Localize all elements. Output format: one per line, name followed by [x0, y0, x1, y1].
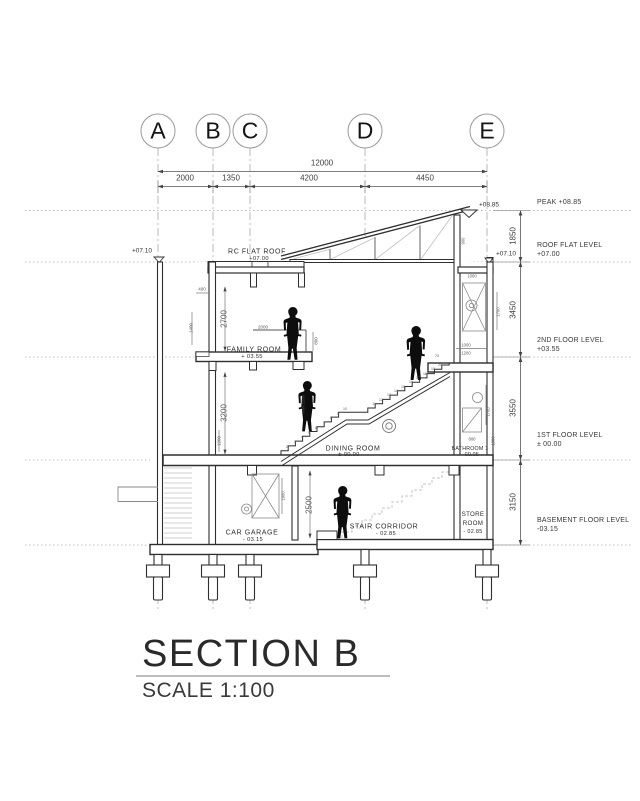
dim-1400: 1400	[189, 323, 194, 333]
stair-step-number: 18	[423, 372, 427, 376]
level-peak: PEAK +08.85	[537, 199, 581, 208]
stair-step-number: 8	[330, 416, 332, 420]
room-garage: CAR GARAGE	[226, 530, 279, 537]
grid-bubble-d: D	[348, 114, 383, 149]
dim-1000-landing: 1000	[461, 343, 470, 348]
roof-elevation-left: +07.10	[132, 248, 152, 255]
dim-400: 400	[198, 287, 206, 292]
room-family-level: + 03.55	[241, 354, 263, 360]
room-store: STORE ROOM - 02.85	[456, 511, 490, 537]
stair-step-number: 20	[438, 363, 442, 367]
dim-bay-bc: 1350	[222, 174, 240, 183]
grid-letter-d: D	[357, 118, 374, 145]
stair-step-number: 17	[416, 376, 420, 380]
dim-800-railing: 800	[314, 337, 319, 345]
grid-letter-c: C	[242, 118, 259, 145]
level-1st: 1ST FLOOR LEVEL± 00.00	[537, 432, 603, 449]
stair-step-number: 15	[401, 385, 405, 389]
grid-bubble-b: B	[196, 114, 231, 149]
stair-step-number: 9	[337, 412, 339, 416]
min-headroom: MIN 2200	[301, 395, 306, 412]
room-family: FAMILY ROOM	[227, 347, 282, 354]
stair-step-number: 3	[294, 440, 296, 444]
annotation-layer: A B C D E 12000 2000 1350 4200 4450 1850…	[0, 0, 640, 801]
stair-step-number: 5	[308, 431, 310, 435]
level-basement: BASEMENT FLOOR LEVEL-03.15	[537, 517, 629, 534]
level-peak-label: PEAK +08.85	[537, 199, 581, 208]
level-roof: ROOF FLAT LEVEL+07.00	[537, 242, 602, 259]
room-bathroom1-level: - 00.05	[461, 452, 479, 458]
stair-step-number: 6	[315, 426, 317, 430]
stair-step-number: 19	[431, 367, 435, 371]
room-rc-flat-roof-level: +07.00	[249, 256, 269, 262]
level-2nd-value: +03.55	[537, 346, 604, 355]
dim-900-roof: 900	[461, 238, 466, 245]
grid-bubble-e: E	[470, 114, 505, 149]
stair-step-number: 2	[286, 445, 288, 449]
grid-bubble-c: C	[233, 114, 268, 149]
drawing-title: SECTION B	[142, 633, 360, 676]
dim-2700: 2700	[220, 310, 229, 328]
level-basement-label: BASEMENT FLOOR LEVEL	[537, 517, 629, 526]
grid-letter-a: A	[150, 118, 165, 145]
drawing-scale: SCALE 1:100	[142, 679, 275, 703]
room-stair-corridor-level: - 02.85	[376, 531, 396, 537]
level-2nd: 2ND FLOOR LEVEL+03.55	[537, 337, 604, 354]
dim-height-basement: 3150	[509, 493, 518, 511]
dim-bay-ab: 2000	[176, 174, 194, 183]
stair-step-number: 12	[379, 398, 383, 402]
dim-1700-shaft: 1700	[496, 307, 501, 316]
room-store-level: - 02.85	[456, 528, 490, 537]
dim-70-landing: 70	[435, 354, 439, 358]
section-drawing-sheet: A B C D E 12000 2000 1350 4200 4450 1850…	[0, 0, 640, 801]
level-roof-value: +07.00	[537, 251, 602, 260]
dim-1000-shaft: 1000	[467, 274, 476, 279]
dim-1000-bath: 1000	[491, 436, 496, 445]
level-roof-label: ROOF FLAT LEVEL	[537, 242, 602, 251]
dim-1200-landing: 1200	[461, 351, 470, 356]
peak-elevation: +08.85	[479, 202, 499, 209]
dim-2500: 2500	[305, 496, 314, 514]
stair-step-number: 10	[343, 407, 347, 411]
dim-height-roof: 1850	[509, 227, 518, 245]
room-store-label: STORE ROOM	[456, 511, 490, 528]
dim-height-2nd: 3450	[509, 301, 518, 319]
dim-overall: 12000	[311, 159, 333, 168]
level-2nd-label: 2ND FLOOR LEVEL	[537, 337, 604, 346]
grid-letter-b: B	[205, 118, 220, 145]
grid-bubble-a: A	[141, 114, 176, 149]
grid-letter-e: E	[479, 118, 494, 145]
dim-1700-bath: 1700	[486, 407, 491, 416]
stair-step-number: 13	[387, 393, 391, 397]
room-garage-level: - 03.15	[243, 537, 263, 543]
room-dining-level: ± 00.00	[338, 452, 359, 458]
dim-bay-cd: 4200	[300, 174, 318, 183]
dim-1200-wall: 1200	[217, 436, 222, 446]
room-stair-corridor: STAIR CORRIDOR	[350, 523, 419, 530]
room-rc-flat-roof: RC FLAT ROOF	[228, 249, 286, 256]
dim-2000-railing: 2000	[258, 325, 268, 330]
level-1st-label: 1ST FLOOR LEVEL	[537, 432, 603, 441]
stair-step-number: 16	[409, 380, 413, 384]
level-basement-value: -03.15	[537, 526, 629, 535]
roof-elevation-right: +07.10	[496, 251, 516, 258]
title-divider	[136, 675, 390, 677]
dim-bay-de: 4450	[416, 174, 434, 183]
level-1st-value: ± 00.00	[537, 441, 603, 450]
stair-step-number: 11	[372, 402, 376, 406]
stair-step-number: 14	[394, 389, 398, 393]
dim-1900-garage: 1900	[281, 491, 286, 500]
stair-step-number: 4	[301, 435, 303, 439]
dim-height-1st: 3550	[509, 399, 518, 417]
stair-step-number: 7	[323, 421, 325, 425]
dim-800-bath: 800	[469, 437, 476, 442]
dim-3200: 3200	[220, 404, 229, 422]
